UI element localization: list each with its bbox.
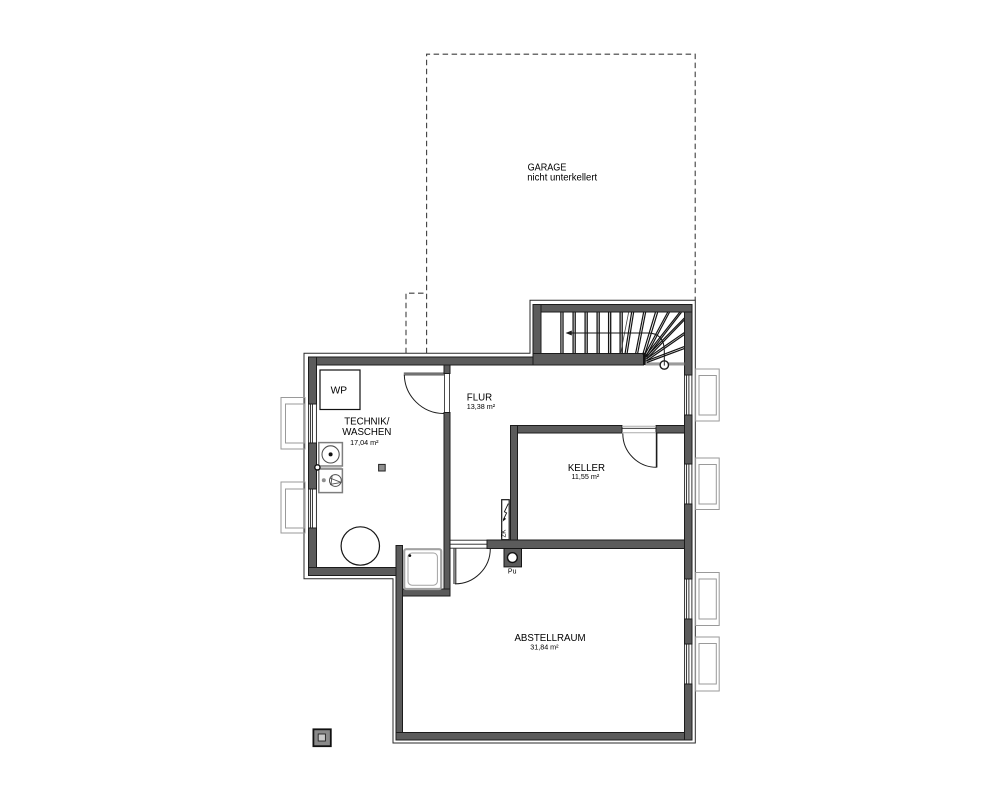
svg-text:TECHNIK/: TECHNIK/ <box>344 417 390 428</box>
svg-text:11,55 m²: 11,55 m² <box>571 472 599 481</box>
svg-text:Pu: Pu <box>508 569 517 576</box>
svg-text:17,04 m²: 17,04 m² <box>350 438 379 447</box>
svg-text:13,38 m²: 13,38 m² <box>467 402 496 411</box>
svg-text:WASCHEN: WASCHEN <box>342 427 391 438</box>
svg-text:ZK: ZK <box>501 529 508 538</box>
svg-text:31,84 m²: 31,84 m² <box>530 642 559 651</box>
svg-text:WP: WP <box>331 386 348 397</box>
svg-text:nicht unterkellert: nicht unterkellert <box>527 172 597 183</box>
